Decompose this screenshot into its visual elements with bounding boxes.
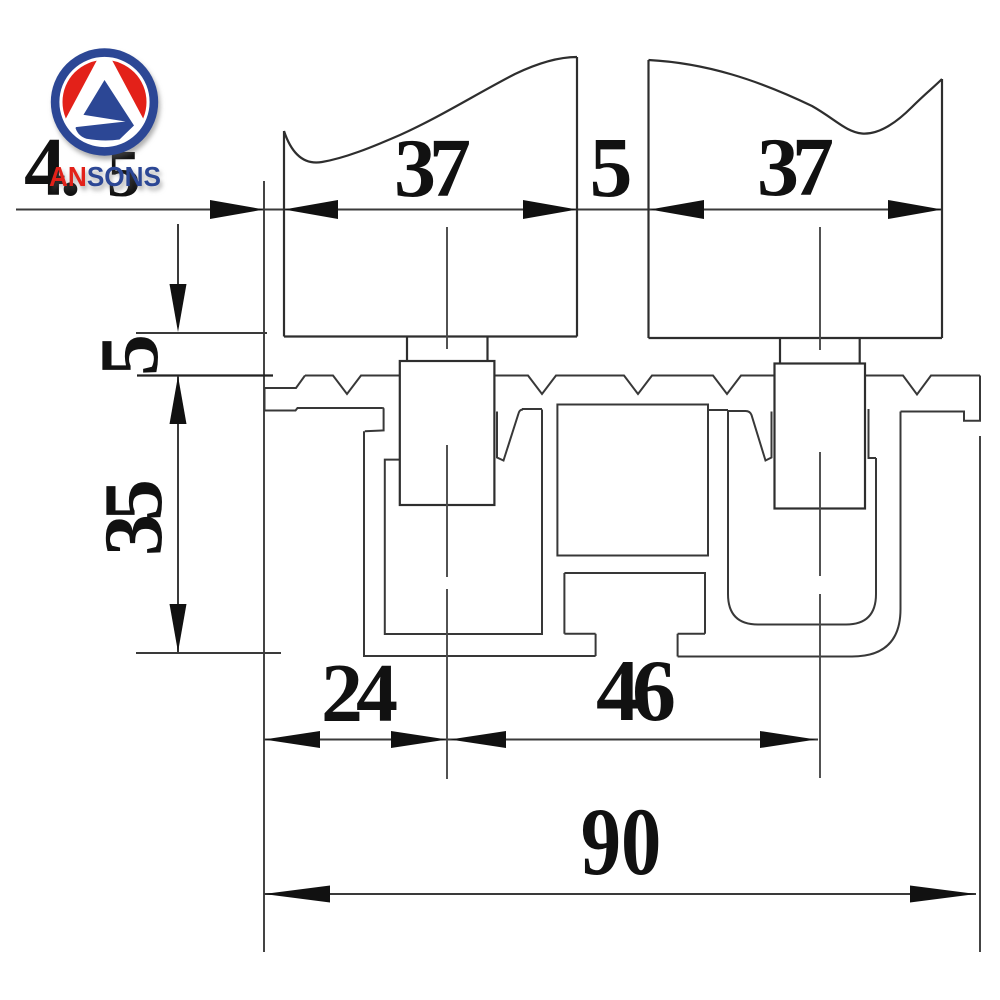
svg-text:46: 46 <box>596 643 674 740</box>
svg-text:5: 5 <box>590 119 633 215</box>
svg-text:5: 5 <box>83 334 176 376</box>
svg-text:37: 37 <box>394 122 469 215</box>
svg-text:37: 37 <box>757 121 832 214</box>
svg-text:24: 24 <box>321 647 397 740</box>
svg-text:35: 35 <box>87 482 180 556</box>
svg-text:90: 90 <box>581 790 662 896</box>
svg-text:ANSONS: ANSONS <box>49 161 161 192</box>
